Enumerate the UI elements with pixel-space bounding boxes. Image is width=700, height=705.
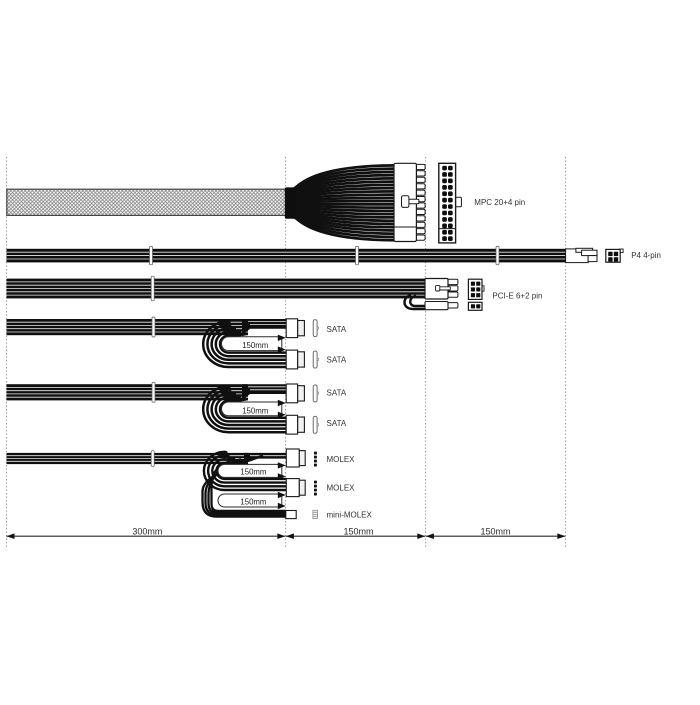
svg-text:PCI-E 6+2 pin: PCI-E 6+2 pin bbox=[492, 291, 542, 300]
svg-text:150mm: 150mm bbox=[343, 527, 373, 537]
svg-text:P4 4-pin: P4 4-pin bbox=[631, 251, 661, 260]
svg-text:150mm: 150mm bbox=[240, 497, 266, 506]
svg-text:mini-MOLEX: mini-MOLEX bbox=[327, 511, 373, 520]
svg-text:SATA: SATA bbox=[327, 419, 347, 428]
svg-text:150mm: 150mm bbox=[480, 527, 510, 537]
svg-text:MOLEX: MOLEX bbox=[327, 484, 356, 493]
svg-text:MOLEX: MOLEX bbox=[327, 455, 356, 464]
svg-text:300mm: 300mm bbox=[132, 527, 162, 537]
svg-text:MPC 20+4 pin: MPC 20+4 pin bbox=[474, 198, 525, 207]
svg-text:SATA: SATA bbox=[327, 389, 347, 398]
svg-text:SATA: SATA bbox=[327, 325, 347, 334]
svg-text:150mm: 150mm bbox=[240, 468, 266, 477]
svg-text:SATA: SATA bbox=[327, 355, 347, 364]
svg-text:150mm: 150mm bbox=[242, 406, 268, 415]
svg-text:150mm: 150mm bbox=[242, 341, 268, 350]
